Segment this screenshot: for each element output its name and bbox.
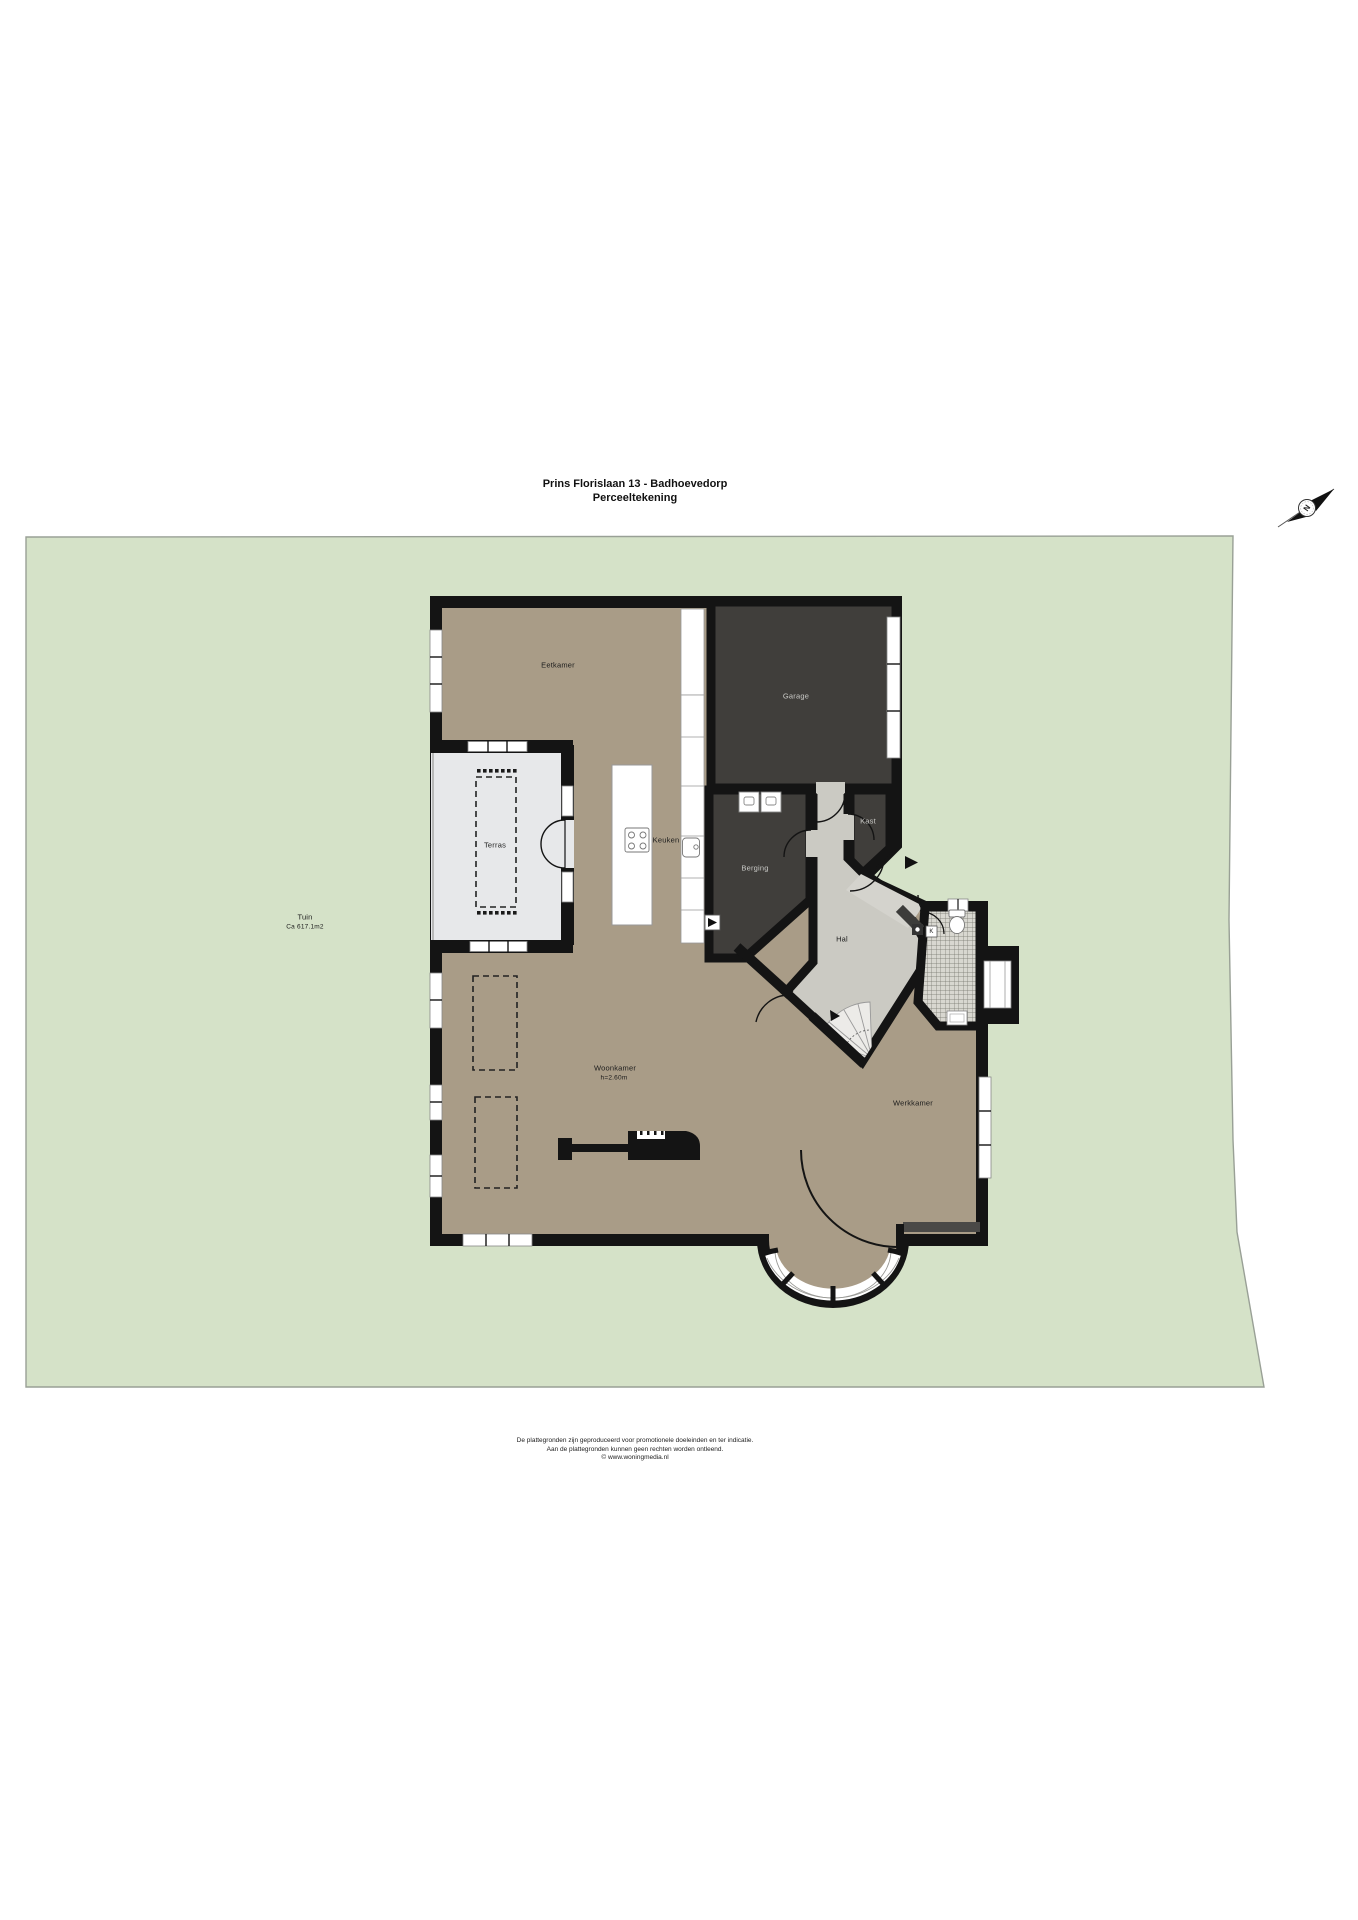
garden-area-label: Ca 617.1m2 [286, 924, 323, 931]
kitchen-island [612, 765, 652, 925]
room-label-terras: Terras [484, 841, 506, 850]
title-subtitle: Perceeltekening [543, 491, 728, 505]
room-label-kast: Kast [860, 817, 876, 826]
stove-icon [625, 828, 649, 852]
meter-box-label: K [929, 929, 933, 935]
title-address: Prins Florislaan 13 - Badhoevedorp [543, 477, 728, 491]
garden-label: Tuin [297, 913, 312, 922]
radiator [903, 1222, 980, 1232]
sink-icon [683, 838, 700, 857]
perceeltekening-page: Prins Florislaan 13 - Badhoevedorp Perce… [0, 0, 1358, 1920]
disclaimer-line-1: De plattegronden zijn geproduceerd voor … [517, 1437, 754, 1446]
dryer-icon [761, 792, 781, 812]
room-label-woonkamer-height: h=2.60m [601, 1075, 628, 1082]
kitchen-counter [681, 609, 704, 943]
copyright-line: © www.woningmedia.nl [517, 1454, 754, 1463]
room-label-eetkamer: Eetkamer [541, 661, 575, 670]
footer-disclaimer: De plattegronden zijn geproduceerd voor … [517, 1437, 754, 1463]
room-label-woonkamer: Woonkamer [594, 1064, 636, 1073]
washer-icon [739, 792, 759, 812]
room-label-werkkamer: Werkkamer [893, 1099, 933, 1108]
entrance-step [982, 950, 1013, 1019]
room-label-berging: Berging [741, 864, 768, 873]
room-label-garage: Garage [783, 692, 809, 701]
floor-plan-svg [0, 0, 1358, 1920]
toilet-icon [949, 910, 965, 934]
page-title: Prins Florislaan 13 - Badhoevedorp Perce… [543, 477, 728, 505]
meter-box-icon [705, 915, 720, 930]
room-label-keuken: Keuken [653, 836, 680, 845]
room-label-hal: Hal [836, 935, 848, 944]
disclaimer-line-2: Aan de plattegronden kunnen geen rechten… [517, 1446, 754, 1455]
